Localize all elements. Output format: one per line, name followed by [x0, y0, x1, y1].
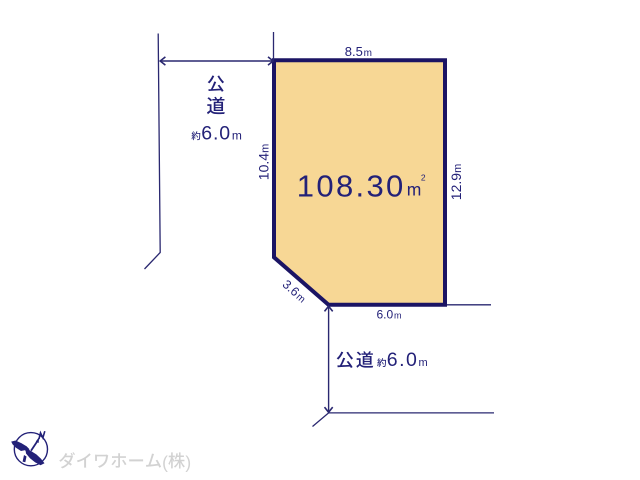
svg-text:108.30: 108.30 [297, 168, 404, 203]
svg-text:m: m [419, 357, 428, 369]
svg-text:m: m [260, 144, 272, 153]
svg-text:m: m [364, 48, 372, 59]
svg-text:10.4: 10.4 [256, 153, 272, 180]
svg-text:m: m [394, 311, 402, 321]
svg-text:(: ( [162, 453, 168, 473]
svg-text:12.9: 12.9 [448, 173, 464, 200]
svg-text:): ) [185, 453, 191, 473]
svg-text:6.0: 6.0 [377, 308, 394, 322]
svg-text:8.5: 8.5 [345, 44, 363, 59]
svg-text:6.0: 6.0 [201, 122, 230, 144]
svg-text:2: 2 [421, 173, 426, 183]
svg-text:6.0: 6.0 [387, 349, 417, 371]
svg-text:m: m [232, 128, 242, 142]
svg-text:m: m [407, 180, 422, 200]
svg-text:m: m [452, 164, 464, 173]
